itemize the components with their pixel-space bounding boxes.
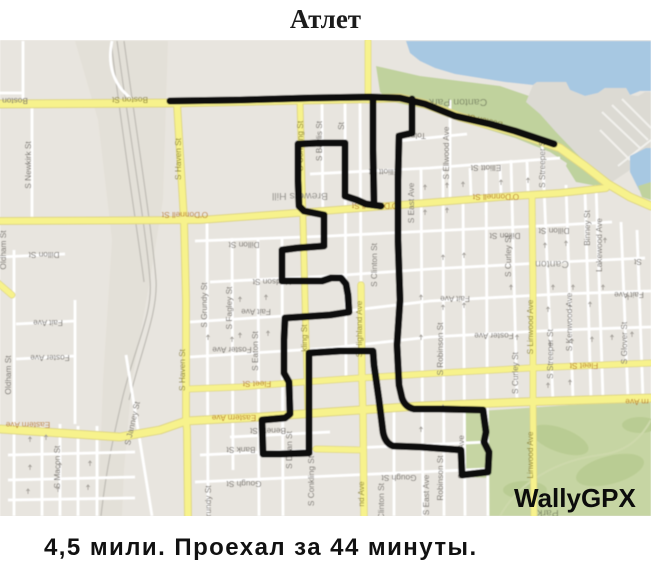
- svg-text:Lakewood Ave: Lakewood Ave: [594, 218, 604, 272]
- svg-text:S Haven St: S Haven St: [177, 348, 187, 391]
- svg-text:Foster Ave: Foster Ave: [474, 331, 514, 341]
- svg-text:Fait Ave: Fait Ave: [241, 307, 271, 317]
- svg-text:Oldham St: Oldham St: [3, 355, 13, 395]
- svg-text:Boston: Boston: [2, 96, 28, 106]
- svg-text:Foster Ave: Foster Ave: [30, 353, 70, 363]
- svg-text:Canton: Canton: [535, 258, 569, 270]
- svg-text:Fait Ave: Fait Ave: [33, 318, 63, 328]
- svg-text:Benefit St: Benefit St: [249, 426, 286, 436]
- svg-text:S Kenwood Ave: S Kenwood Ave: [564, 292, 574, 351]
- svg-text:Eastern Ave: Eastern Ave: [5, 420, 50, 430]
- svg-text:Oldham St: Oldham St: [0, 230, 8, 270]
- svg-text:S East Ave: S East Ave: [406, 182, 416, 223]
- svg-text:Boston St: Boston St: [111, 95, 148, 105]
- svg-text:S Grundy St: S Grundy St: [203, 485, 213, 531]
- svg-text:S Glover St: S Glover St: [619, 321, 629, 364]
- svg-text:Fait Ave: Fait Ave: [440, 294, 470, 304]
- svg-text:S Clinton St: S Clinton St: [376, 482, 386, 527]
- svg-text:O'Donnell St: O'Donnell St: [472, 192, 519, 202]
- svg-text:WallyGPX: WallyGPX: [514, 483, 637, 513]
- svg-text:S Curley St: S Curley St: [510, 351, 520, 394]
- svg-text:Fleet St: Fleet St: [242, 379, 271, 389]
- svg-text:Eastern Ave: Eastern Ave: [211, 413, 256, 423]
- svg-text:S Grundy St: S Grundy St: [199, 282, 209, 328]
- svg-text:S Clinton St: S Clinton St: [369, 242, 379, 287]
- svg-text:S East Ave: S East Ave: [421, 474, 431, 515]
- svg-text:Binney St: Binney St: [582, 210, 592, 246]
- svg-text:S Fagley St: S Fagley St: [224, 286, 234, 330]
- svg-text:St: St: [633, 257, 642, 267]
- svg-text:Foster Ave: Foster Ave: [212, 345, 252, 355]
- svg-text:Dillon St: Dillon St: [28, 250, 60, 260]
- svg-text:Robinson St: Robinson St: [435, 455, 445, 501]
- svg-text:S Streeper St: S Streeper St: [545, 328, 555, 379]
- svg-text:S Robinson St: S Robinson St: [435, 322, 445, 376]
- svg-text:Elliott St: Elliott St: [470, 163, 501, 173]
- svg-text:S Ellwood Ave: S Ellwood Ave: [441, 126, 451, 179]
- svg-text:St: St: [336, 121, 346, 130]
- svg-text:nd Ave: nd Ave: [356, 481, 366, 507]
- svg-text:S Linwood Ave: S Linwood Ave: [525, 299, 535, 354]
- svg-text:S Haven St: S Haven St: [173, 137, 183, 180]
- svg-text:Dillon St: Dillon St: [228, 240, 260, 250]
- svg-text:S Curley St: S Curley St: [503, 234, 513, 277]
- svg-text:Dillon St: Dillon St: [538, 226, 570, 236]
- svg-text:Gough St: Gough St: [381, 473, 417, 483]
- svg-text:rn Ave: rn Ave: [625, 397, 649, 407]
- svg-text:Bank St: Bank St: [226, 445, 256, 455]
- svg-text:kling St: kling St: [299, 324, 309, 352]
- svg-text:S Streeper St: S Streeper St: [537, 137, 547, 188]
- svg-text:O'Donnell St: O'Donnell St: [161, 210, 208, 220]
- svg-text:S Macon St: S Macon St: [52, 445, 62, 489]
- svg-text:Gough St: Gough St: [226, 479, 262, 489]
- svg-text:S Conkling St: S Conkling St: [306, 455, 316, 506]
- svg-text:Fleet St: Fleet St: [569, 361, 598, 371]
- svg-text:Linwood Ave: Linwood Ave: [525, 431, 535, 478]
- svg-text:Fait Ave: Fait Ave: [614, 290, 644, 300]
- svg-text:S Newkirk St: S Newkirk St: [23, 141, 33, 189]
